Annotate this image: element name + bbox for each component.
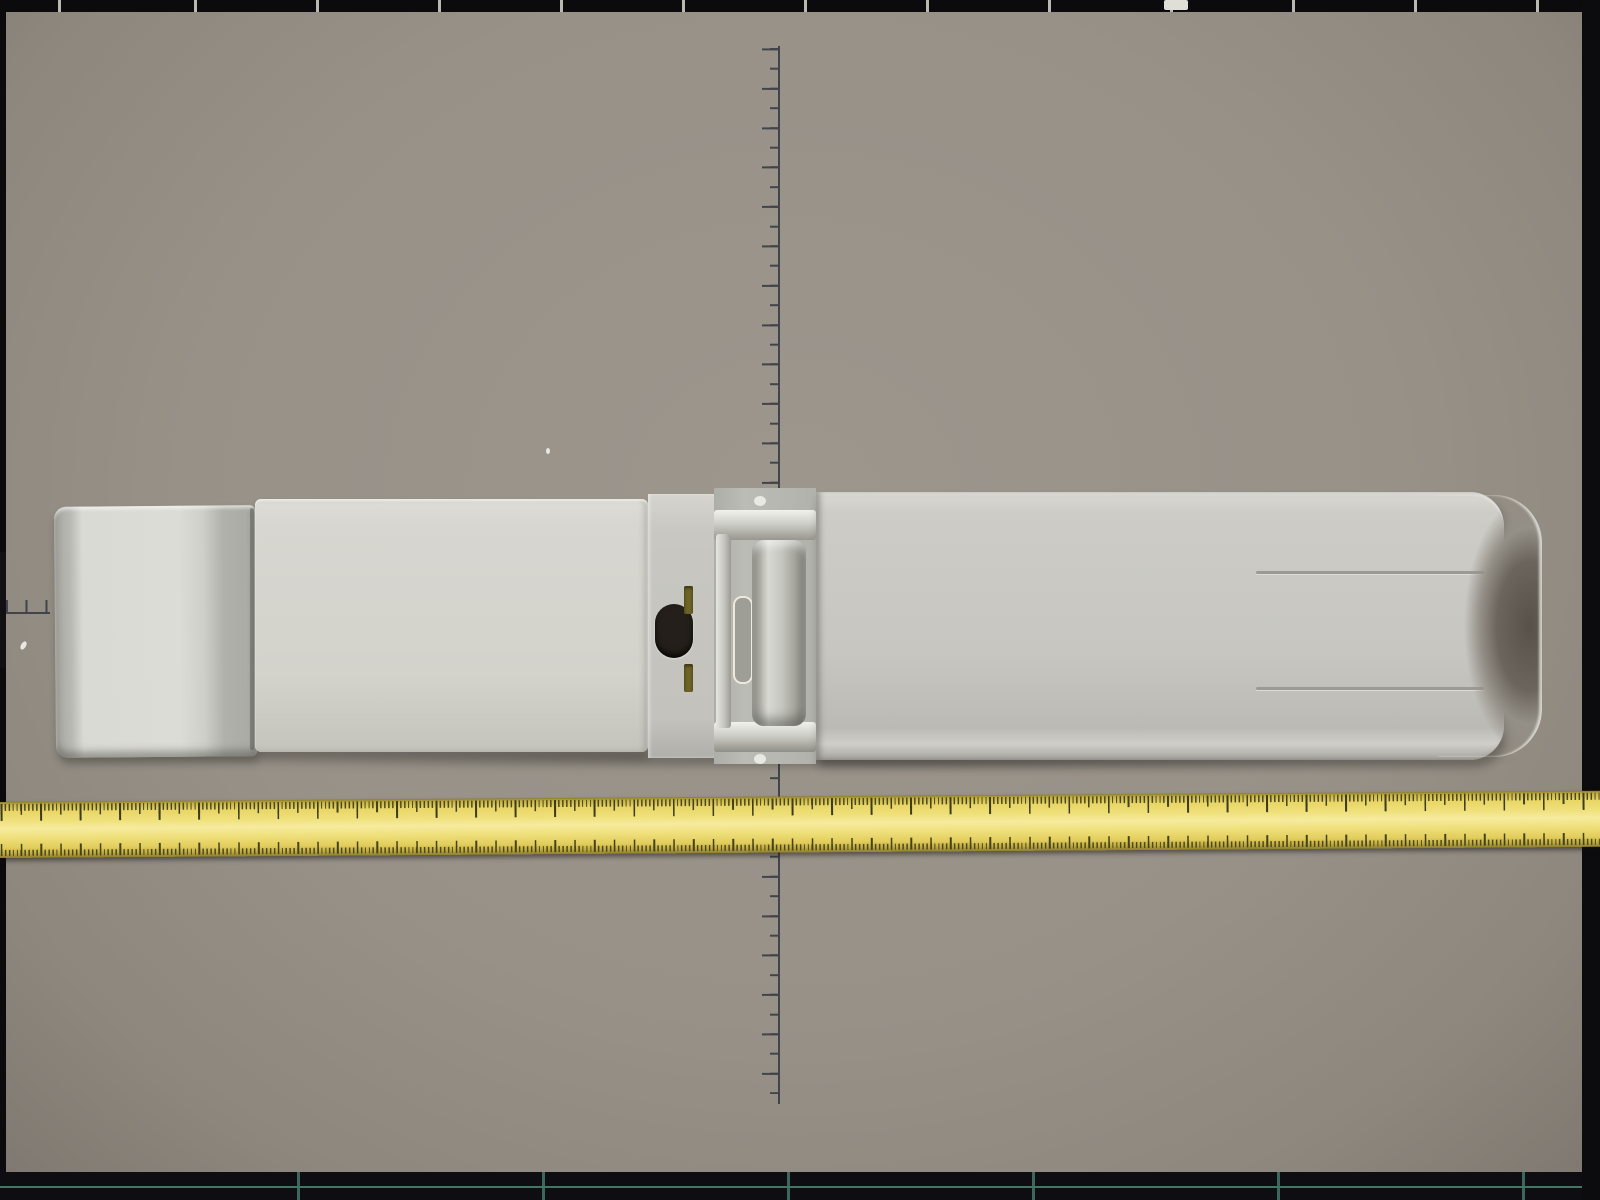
hinge-pin-bottom: [754, 754, 766, 764]
mat-bright-mark: [1164, 0, 1188, 10]
cover-panel-seam: [250, 508, 254, 750]
tray-rounded-end-shadow: [1438, 495, 1542, 757]
vent-slit-lower: [684, 664, 693, 692]
crosshair-horizontal-ticks: [6, 600, 50, 612]
cutting-mat-right-edge: [1582, 0, 1600, 1200]
dust-speck: [19, 640, 28, 650]
device-back-tray: [816, 492, 1504, 760]
photo-scene: [0, 0, 1600, 1200]
keypad-flip-cover: [54, 505, 257, 758]
keypad-panel: [255, 499, 648, 752]
hinge-bar-left: [716, 534, 731, 728]
dust-speck: [546, 448, 550, 454]
hinge-pin-top: [754, 496, 766, 506]
vent-slit-upper: [684, 586, 693, 614]
measuring-tape: [0, 791, 1600, 858]
crosshair-horizontal-line-left-stub: [6, 612, 50, 614]
cutting-mat-bottom-edge: [0, 1170, 1600, 1200]
hinge-spring-roller: [752, 540, 806, 726]
keypad-end-plate: [648, 494, 714, 758]
hinge-slot: [733, 596, 753, 684]
